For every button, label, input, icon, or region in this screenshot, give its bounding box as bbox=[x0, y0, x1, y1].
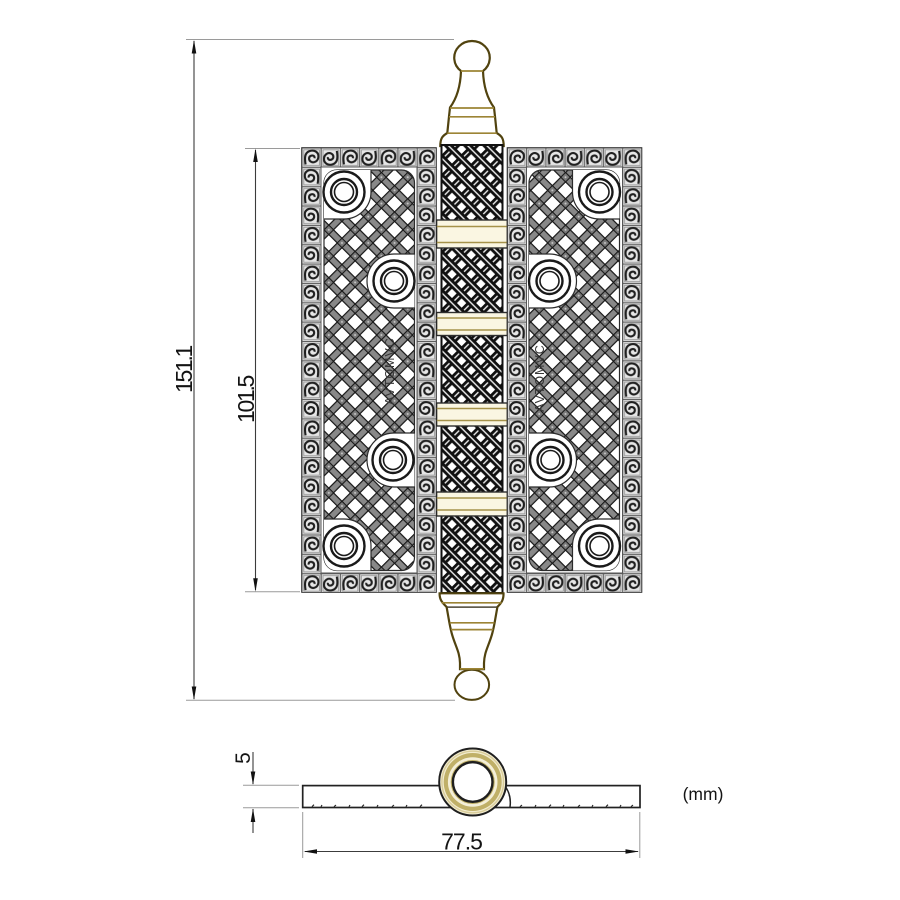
svg-text:AVTOMVC: AVTOMVC bbox=[533, 344, 547, 412]
svg-text:AVTOMVC: AVTOMVC bbox=[383, 337, 397, 405]
svg-text:5: 5 bbox=[232, 752, 255, 764]
svg-text:(mm): (mm) bbox=[683, 784, 724, 804]
svg-text:151.1: 151.1 bbox=[171, 345, 197, 393]
svg-text:77.5: 77.5 bbox=[441, 829, 482, 855]
svg-text:101.5: 101.5 bbox=[233, 375, 259, 423]
